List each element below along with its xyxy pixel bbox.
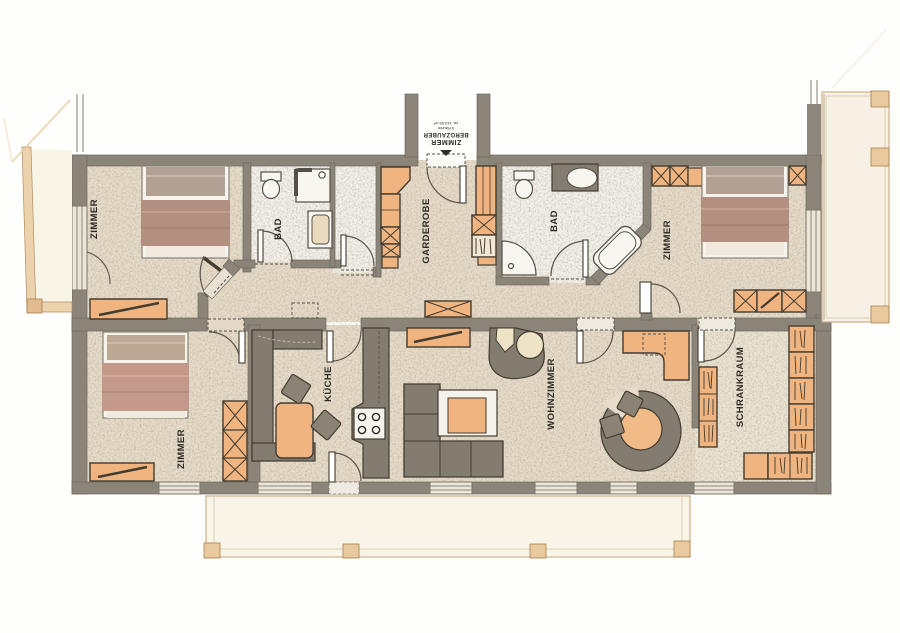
svg-text:ca. 143,55 m²: ca. 143,55 m² — [433, 121, 458, 126]
svg-text:SCHRANKRAUM: SCHRANKRAUM — [735, 347, 746, 427]
svg-text:ZIMMER: ZIMMER — [431, 138, 462, 145]
svg-text:GARDEROBE: GARDEROBE — [421, 198, 432, 263]
svg-text:ZIMMER: ZIMMER — [176, 429, 187, 469]
svg-text:ZIMMER: ZIMMER — [89, 199, 100, 239]
svg-text:BAD: BAD — [549, 210, 560, 232]
svg-text:WOHNZIMMER: WOHNZIMMER — [546, 358, 557, 430]
svg-text:BAD: BAD — [273, 218, 284, 240]
svg-text:KÜCHE: KÜCHE — [323, 366, 334, 402]
svg-text:ZIMMER: ZIMMER — [662, 220, 673, 260]
